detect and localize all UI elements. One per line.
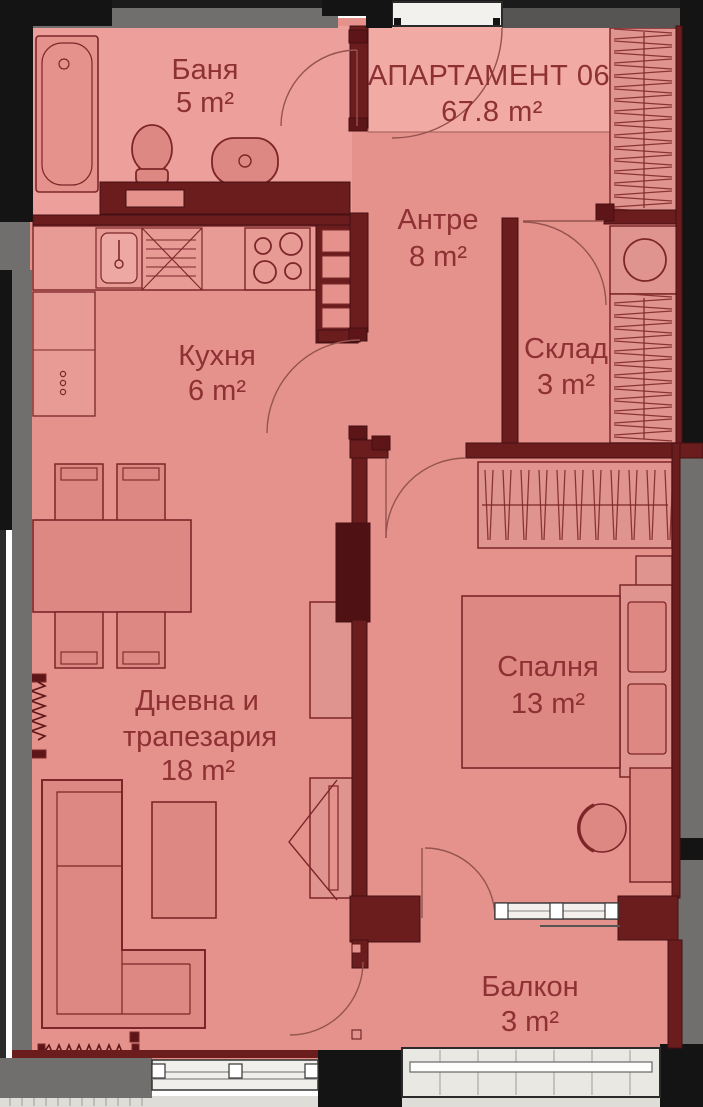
wash-basin <box>212 138 278 185</box>
dining-chair <box>117 612 165 668</box>
kitchen-cabinet <box>33 292 95 416</box>
wall-balcony-right-block <box>618 896 678 940</box>
toilet <box>132 125 172 183</box>
railing-rail <box>410 1062 652 1072</box>
wall-bedroom-right-face <box>672 443 680 898</box>
entry-fixtures <box>604 28 680 443</box>
bathtub <box>36 36 98 192</box>
pillow <box>628 602 666 672</box>
room-area-living: 18 m² <box>161 755 235 787</box>
room-label-bedroom: Спалня <box>497 651 598 683</box>
door-frame-mark <box>352 944 361 953</box>
door-frame-mark <box>352 1030 361 1039</box>
structural-column <box>336 523 370 622</box>
floor-plan: АПАРТАМЕНТ 06 67.8 m² Баня 5 m² Антре 8 … <box>0 0 703 1107</box>
wall-top-right-gray <box>502 8 682 28</box>
wall-left-edge-line <box>0 530 6 1058</box>
room-area-kitchen: 6 m² <box>188 375 246 407</box>
kitchen-sink <box>96 228 142 288</box>
wall-bathroom-kitchen <box>33 215 360 225</box>
wall-kitchen-entry <box>350 213 368 332</box>
closet-lower-right <box>610 294 678 443</box>
door-jamb <box>596 204 614 221</box>
room-label-balcony: Балкон <box>481 971 578 1003</box>
wall-left-black-strip <box>0 270 12 530</box>
door-jamb <box>372 436 390 450</box>
coffee-table <box>152 802 216 918</box>
dining-chair <box>117 464 165 522</box>
room-label-living-2: трапезария <box>123 721 277 753</box>
wall-right-gray-upper <box>678 450 703 838</box>
wall-top-notch <box>322 0 366 16</box>
door-jamb <box>349 118 367 131</box>
wall-left-black <box>0 26 33 222</box>
pillow <box>628 684 666 754</box>
wall-left-stub <box>0 222 30 270</box>
room-area-bathroom: 5 m² <box>176 87 234 119</box>
wall-balcony-corner <box>350 896 420 942</box>
room-label-kitchen: Кухня <box>178 340 256 372</box>
wall-bottom-right-black <box>660 1044 703 1107</box>
dining-table <box>33 520 191 612</box>
stool <box>578 804 626 852</box>
wall-entry-storage <box>502 218 518 443</box>
wall-living-bedroom-lower <box>352 620 367 900</box>
washing-machine <box>610 226 678 294</box>
wall-right-black <box>682 26 703 450</box>
floor-plan-page: АПАРТАМЕНТ 06 67.8 m² Баня 5 m² Антре 8 … <box>0 0 703 1107</box>
dining-chair <box>55 464 103 522</box>
room-label-bathroom: Баня <box>172 54 239 86</box>
room-area-entry: 8 m² <box>409 241 467 273</box>
room-area-bedroom: 13 m² <box>511 688 585 720</box>
apartment-title: АПАРТАМЕНТ 06 <box>368 60 610 92</box>
dining-chair <box>55 612 103 668</box>
closet-divider-wall <box>604 210 680 224</box>
wall-balcony-right <box>668 940 682 1048</box>
wall-bottom-center-black <box>318 1050 402 1107</box>
room-area-storage: 3 m² <box>537 369 595 401</box>
room-area-balcony: 3 m² <box>501 1006 559 1038</box>
door-jamb <box>349 30 367 43</box>
wall-bottom-left-gray <box>0 1058 152 1098</box>
wall-living-bedroom-upper <box>352 458 367 523</box>
bathroom-vanity <box>100 182 350 214</box>
wall-bottom-inner-face <box>12 1050 318 1058</box>
door-jamb <box>349 426 367 439</box>
apartment-area: 67.8 m² <box>441 96 543 128</box>
room-label-storage: Склад <box>524 333 608 365</box>
room-label-living-1: Дневна и <box>135 685 259 717</box>
wall-bedroom-top <box>466 443 703 458</box>
balcony-railing <box>402 1048 660 1097</box>
wall-right-inner-face <box>676 26 682 443</box>
desk <box>630 768 672 882</box>
room-label-entry: Антре <box>398 204 479 236</box>
closet-top-right <box>610 28 678 212</box>
wardrobe <box>478 462 672 548</box>
door-jamb <box>349 328 367 341</box>
wall-left-gray <box>12 270 32 1058</box>
living-bottom-window <box>152 1060 318 1090</box>
wall-top-left-black <box>0 0 112 26</box>
